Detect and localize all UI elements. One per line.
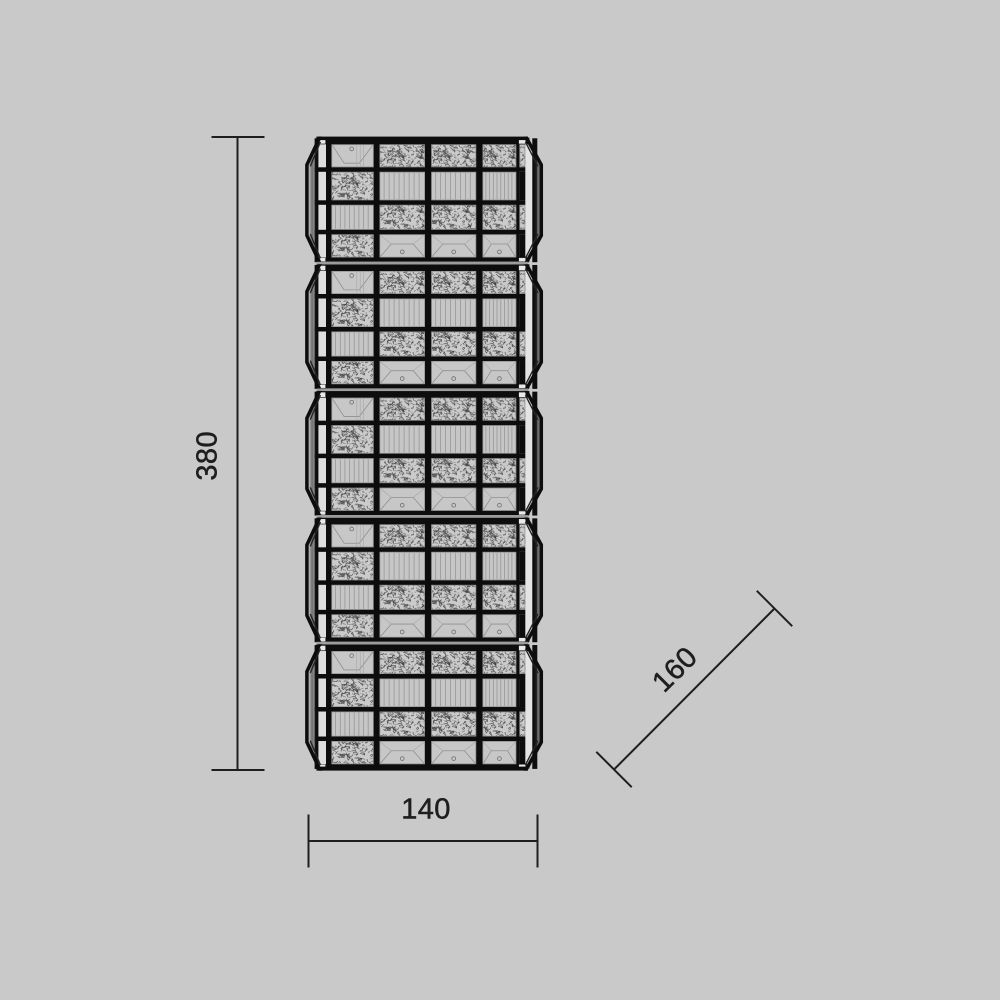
svg-text:140: 140 (401, 794, 451, 826)
svg-text:380: 380 (192, 431, 224, 481)
